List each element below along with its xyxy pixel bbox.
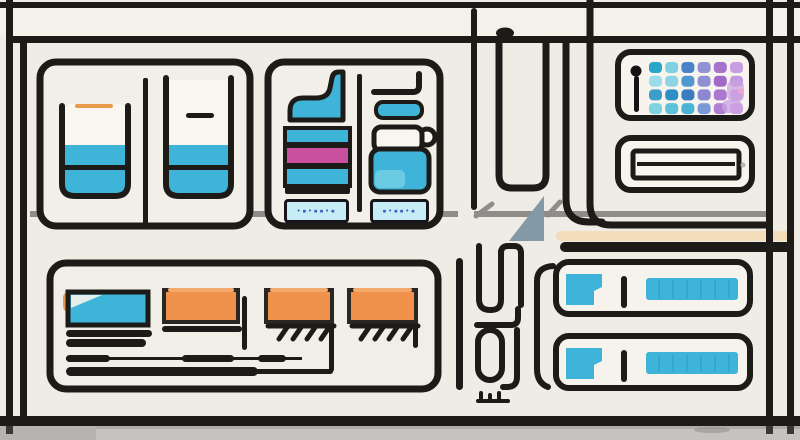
display-dot	[698, 103, 711, 114]
display-dot	[714, 89, 727, 100]
beaker-icon	[166, 78, 231, 196]
cable-segment	[66, 355, 110, 362]
display-dot	[665, 76, 678, 87]
peach-band	[556, 231, 795, 241]
black-bar	[560, 242, 792, 252]
block-underline	[66, 330, 152, 337]
slot-dot	[741, 163, 746, 168]
divider-tick	[242, 296, 247, 350]
unit-tick	[621, 276, 627, 308]
beaker-orange-mark	[75, 104, 113, 108]
jar-sheen	[375, 170, 405, 188]
display-dot	[649, 89, 662, 100]
display-dot	[730, 62, 743, 73]
bottom-line	[0, 416, 800, 426]
comb-drop	[329, 326, 334, 372]
dot-display-panel	[618, 52, 752, 118]
card-slot-panel	[618, 138, 752, 190]
display-dot	[698, 89, 711, 100]
top-line-outer	[0, 2, 800, 8]
floor-stub	[6, 426, 13, 434]
cable-line-long	[66, 367, 258, 376]
beaker-cabinet	[40, 62, 250, 226]
display-dot	[698, 62, 711, 73]
label-chip: ▪•▪▪•▪	[370, 199, 429, 223]
cable-segment	[258, 355, 286, 362]
left-line-inner	[20, 36, 27, 421]
pink-dot	[738, 88, 744, 94]
floor-shadow	[694, 427, 730, 433]
top-line-inner	[10, 36, 800, 43]
lavender-blob	[722, 100, 742, 113]
band-cyan	[285, 167, 350, 186]
cable-segment	[182, 355, 234, 362]
server-unit-icon	[556, 262, 750, 314]
band-magenta	[285, 146, 350, 165]
display-dot	[714, 62, 727, 73]
server-unit-icon	[556, 336, 750, 388]
display-dot	[681, 62, 694, 73]
pill-cyan	[376, 102, 422, 118]
beaker-dash-mark	[186, 113, 214, 118]
band-base	[285, 186, 350, 194]
cabinet-divider	[143, 78, 148, 226]
display-dot	[681, 89, 694, 100]
block-underline	[162, 326, 242, 332]
control-panel	[50, 263, 438, 389]
display-dot	[698, 76, 711, 87]
display-dot	[649, 103, 662, 114]
label-chip: •▪•▪▪•▪	[284, 199, 349, 223]
block-highlight	[353, 288, 412, 292]
slot-mid-line	[637, 162, 735, 166]
block-highlight	[168, 288, 234, 292]
floor-stub	[787, 426, 794, 434]
right-line-outer	[787, 0, 794, 432]
cable-line-short	[66, 339, 146, 347]
comb-drop	[413, 326, 418, 348]
left-line-outer	[6, 0, 13, 433]
display-dot	[681, 76, 694, 87]
key-block	[63, 291, 152, 337]
illustration-stage: •▪•▪▪•▪ ▪•▪▪•▪	[0, 0, 800, 440]
standalone-bar	[456, 258, 463, 390]
display-dot	[665, 103, 678, 114]
right-line-inner	[766, 0, 773, 432]
beaker-icon	[61, 104, 129, 196]
top-band	[0, 8, 800, 36]
block-highlight	[270, 288, 328, 292]
unit-tick	[621, 350, 627, 382]
display-dot	[649, 62, 662, 73]
floor-stub	[766, 426, 773, 434]
display-dot	[714, 76, 727, 87]
cable-line-long-thin	[255, 369, 333, 374]
rack-divider	[357, 74, 362, 212]
display-dot	[665, 89, 678, 100]
display-dot	[681, 103, 694, 114]
band-cyan	[285, 128, 350, 144]
floor	[0, 426, 800, 440]
display-dot	[649, 76, 662, 87]
pipe-vertical-a	[471, 8, 477, 210]
display-dot	[665, 62, 678, 73]
